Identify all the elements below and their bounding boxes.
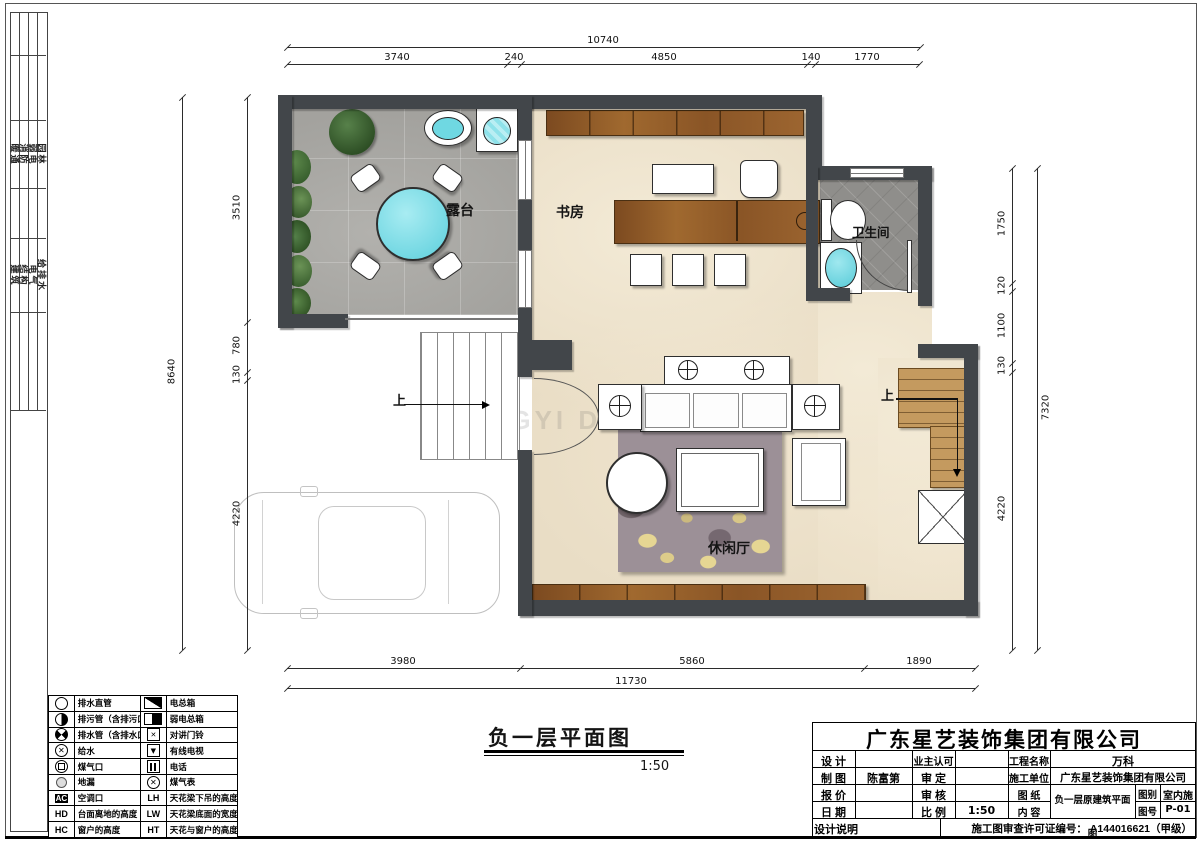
ac-outlet-code: AC <box>49 791 75 806</box>
discipline-landscape: 园林 <box>35 123 48 187</box>
shaft-box <box>918 490 968 544</box>
window <box>518 140 532 200</box>
window <box>518 250 532 308</box>
permit-number: 施工图审查许可证编号： A144016621（甲级） <box>940 821 1192 836</box>
design-label: 设 计 <box>812 753 855 769</box>
study-stool <box>630 254 662 286</box>
sheet-content-value: 负一层原建筑平面图 <box>1050 784 1135 818</box>
main-power-box-icon <box>141 696 167 711</box>
gas-meter-icon: ✕ <box>141 775 167 790</box>
figure-scale: 1:50 <box>640 759 669 774</box>
dim-top-3: 4850 <box>634 52 694 63</box>
stair-up-label-left: 上 <box>393 390 406 409</box>
terrace-sink-basin <box>432 117 464 140</box>
ht-code: HT <box>141 822 167 837</box>
dim-top-2: 240 <box>484 52 544 63</box>
study-desk <box>614 200 820 244</box>
doorbell-icon: ✕ <box>141 728 167 743</box>
hc-code: HC <box>49 822 75 837</box>
study-stool <box>714 254 746 286</box>
entry-stair-treads <box>420 332 520 460</box>
design-notes-label: 设计说明 <box>814 821 874 837</box>
discipline-plumbing: 给排水 <box>35 244 48 308</box>
dim-right-total: 7320 <box>1041 378 1052 438</box>
draft-label: 制 图 <box>812 770 855 786</box>
study-paper <box>652 164 714 194</box>
stair-flight <box>930 426 968 488</box>
bush-icon <box>329 109 375 155</box>
drawing-no-label: 图号 <box>1135 804 1160 818</box>
armchair <box>792 438 846 506</box>
round-side-table <box>606 452 668 514</box>
dim-right-1: 1750 <box>997 194 1008 254</box>
lh-code: LH <box>141 791 167 806</box>
dim-left-total: 8640 <box>167 342 178 402</box>
window <box>850 168 904 178</box>
telephone-icon <box>141 759 167 774</box>
water-supply-icon: ✕ <box>49 743 75 758</box>
entry-arrow-line <box>404 404 484 405</box>
scale-label: 比 例 <box>912 804 955 820</box>
study-stool <box>672 254 704 286</box>
dim-left-3: 130 <box>232 345 243 405</box>
project-name-label: 工程名称 <box>1008 753 1050 768</box>
room-label-bathroom: 卫生间 <box>852 222 890 241</box>
project-name-value: 万科 <box>1050 753 1196 769</box>
content-label: 内 容 <box>1008 804 1050 819</box>
washing-machine-drum <box>483 117 511 145</box>
dim-bottom-2: 5860 <box>662 656 722 667</box>
quote-label: 报 价 <box>812 787 855 803</box>
dim-right-5: 4220 <box>997 479 1008 539</box>
coffee-table <box>676 448 764 512</box>
bath-basin <box>825 248 857 288</box>
dim-bottom-total: 11730 <box>601 676 661 687</box>
date-label: 日 期 <box>812 804 855 820</box>
drain-pipe-icon <box>49 728 75 743</box>
owner-approve-label: 业主认可 <box>912 753 955 768</box>
study-desk-divider <box>736 201 738 241</box>
lw-code: LW <box>141 806 167 821</box>
floor-drain-icon <box>49 775 75 790</box>
terrace-round-table <box>376 187 450 261</box>
table-lamp <box>744 360 764 380</box>
entry-arrow-head <box>482 401 490 409</box>
sewage-pipe-icon <box>49 712 75 727</box>
review-label: 审 核 <box>912 787 955 803</box>
dim-top-5: 1770 <box>837 52 897 63</box>
dim-bottom-3: 1890 <box>889 656 949 667</box>
dim-bottom-1: 3980 <box>373 656 433 667</box>
table-lamp <box>804 395 826 417</box>
company-name: 广东星艺装饰集团有限公司 <box>812 724 1196 754</box>
dim-left-4: 4220 <box>232 484 243 544</box>
contractor-value: 广东星艺装饰集团有限公司 <box>1050 770 1196 785</box>
drain-vertical-pipe-icon <box>49 696 75 711</box>
table-lamp <box>609 395 631 417</box>
study-wall-cabinets <box>546 110 804 136</box>
study-chair <box>740 160 778 198</box>
room-label-lounge: 休闲厅 <box>708 538 750 558</box>
sheet-label: 图 纸 <box>1008 787 1050 802</box>
dim-left-1: 3510 <box>232 178 243 238</box>
drawing-type-value: 室内施 <box>1160 787 1196 802</box>
gas-outlet-icon <box>49 759 75 774</box>
figure-title: 负一层平面图 <box>488 722 632 752</box>
stair-arrow-head <box>953 469 961 477</box>
stair-up-label-right: 上 <box>881 385 894 404</box>
draft-value: 陈富第 <box>855 770 912 786</box>
room-label-terrace: 露台 <box>446 200 474 220</box>
legend-table: 排水直管电总箱 排污管（含排污口）弱电总箱 排水管（含排水口）✕对讲门铃 ✕给水… <box>48 695 238 838</box>
dim-right-4: 130 <box>997 336 1008 396</box>
cable-tv-icon: ▼ <box>141 743 167 758</box>
stair-arrow-h <box>896 398 958 400</box>
room-label-study: 书房 <box>556 202 584 222</box>
drawing-sheet: 暖通 消防 弱电 园林 建筑 结构 电气 给排水 XINGYI DECORATI… <box>0 0 1200 840</box>
weak-power-box-icon <box>141 712 167 727</box>
sofa <box>640 384 792 432</box>
bath-door-leaf <box>907 240 912 293</box>
dim-top-1: 3740 <box>367 52 427 63</box>
dim-top-total: 10740 <box>573 35 633 46</box>
contractor-label: 施工单位 <box>1008 770 1050 785</box>
drawing-type-label: 图别 <box>1135 787 1160 801</box>
stair-arrow-v <box>957 398 959 470</box>
table-lamp <box>678 360 698 380</box>
drawing-no-value: P-01 <box>1160 804 1196 815</box>
approve-label: 审 定 <box>912 770 955 786</box>
hd-code: HD <box>49 806 75 821</box>
scale-value: 1:50 <box>955 804 1008 817</box>
